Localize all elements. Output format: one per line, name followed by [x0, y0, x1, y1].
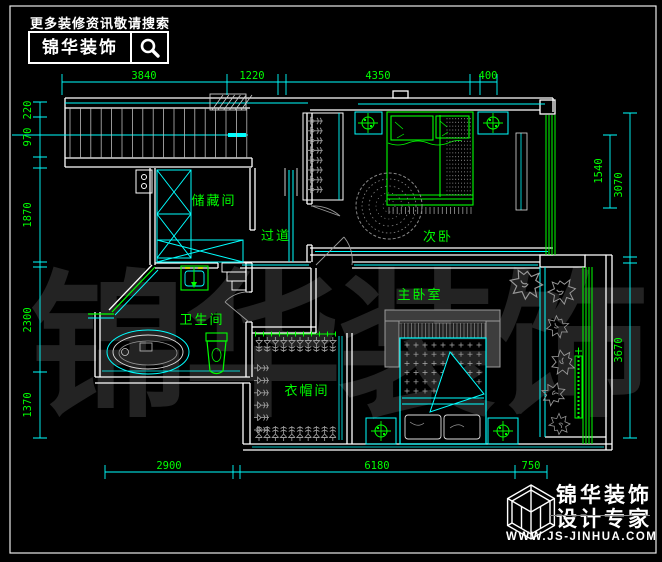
search-icon — [132, 33, 167, 62]
dim-bottom-2: 6180 — [364, 460, 389, 472]
dim-left-1: 220 — [22, 101, 34, 120]
floorplan-image: 锦华装饰 — [0, 0, 662, 562]
window-second-bedroom — [546, 115, 555, 255]
room-label-corridor: 过道 — [261, 228, 291, 243]
wardrobe-second-bedroom — [303, 113, 343, 200]
brand-search-box: 锦华装饰 — [28, 31, 169, 64]
dim-top-4: 400 — [479, 70, 498, 82]
dim-top-2: 1220 — [239, 70, 264, 82]
dim-right-outer-1: 3070 — [613, 172, 625, 197]
promo-tagline: 更多装修资讯敬请搜索 — [30, 13, 170, 32]
bedding-texture — [447, 118, 470, 196]
room-label-cloakroom: 衣帽间 — [284, 383, 329, 398]
room-label-master-bedroom: 主卧室 — [397, 287, 442, 302]
room-label-bathroom: 卫生间 — [179, 312, 224, 327]
dim-left-3: 1870 — [22, 202, 34, 227]
dim-top-1: 3840 — [131, 70, 156, 82]
footer-subtitle: 设计专家 — [556, 503, 652, 533]
bed-second-bedroom — [387, 112, 473, 205]
brand-name: 锦华装饰 — [30, 33, 132, 62]
footer-website: WWW.JS-JINHUA.COM — [506, 531, 657, 543]
ceiling-lamp-icon — [483, 113, 503, 133]
room-label-storage: 储藏间 — [191, 193, 236, 208]
balcony-railing — [70, 108, 247, 158]
round-rug — [356, 173, 422, 239]
dim-left-5: 1370 — [22, 392, 34, 417]
dim-left-2: 970 — [22, 128, 34, 147]
dim-right-inner: 1540 — [593, 158, 605, 183]
dim-left-4: 2300 — [22, 307, 34, 332]
dim-right-outer-2: 3670 — [613, 337, 625, 362]
dim-top-3: 4350 — [365, 70, 390, 82]
dim-bottom-3: 750 — [522, 460, 541, 472]
storage-cabinets — [157, 170, 243, 262]
sliding-panel — [516, 133, 527, 210]
floorplan-drawing: 锦华装饰 — [0, 0, 662, 562]
ceiling-lamp-icon — [358, 113, 378, 133]
room-label-second-bedroom: 次卧 — [423, 229, 453, 244]
dim-bottom-1: 2900 — [156, 460, 181, 472]
